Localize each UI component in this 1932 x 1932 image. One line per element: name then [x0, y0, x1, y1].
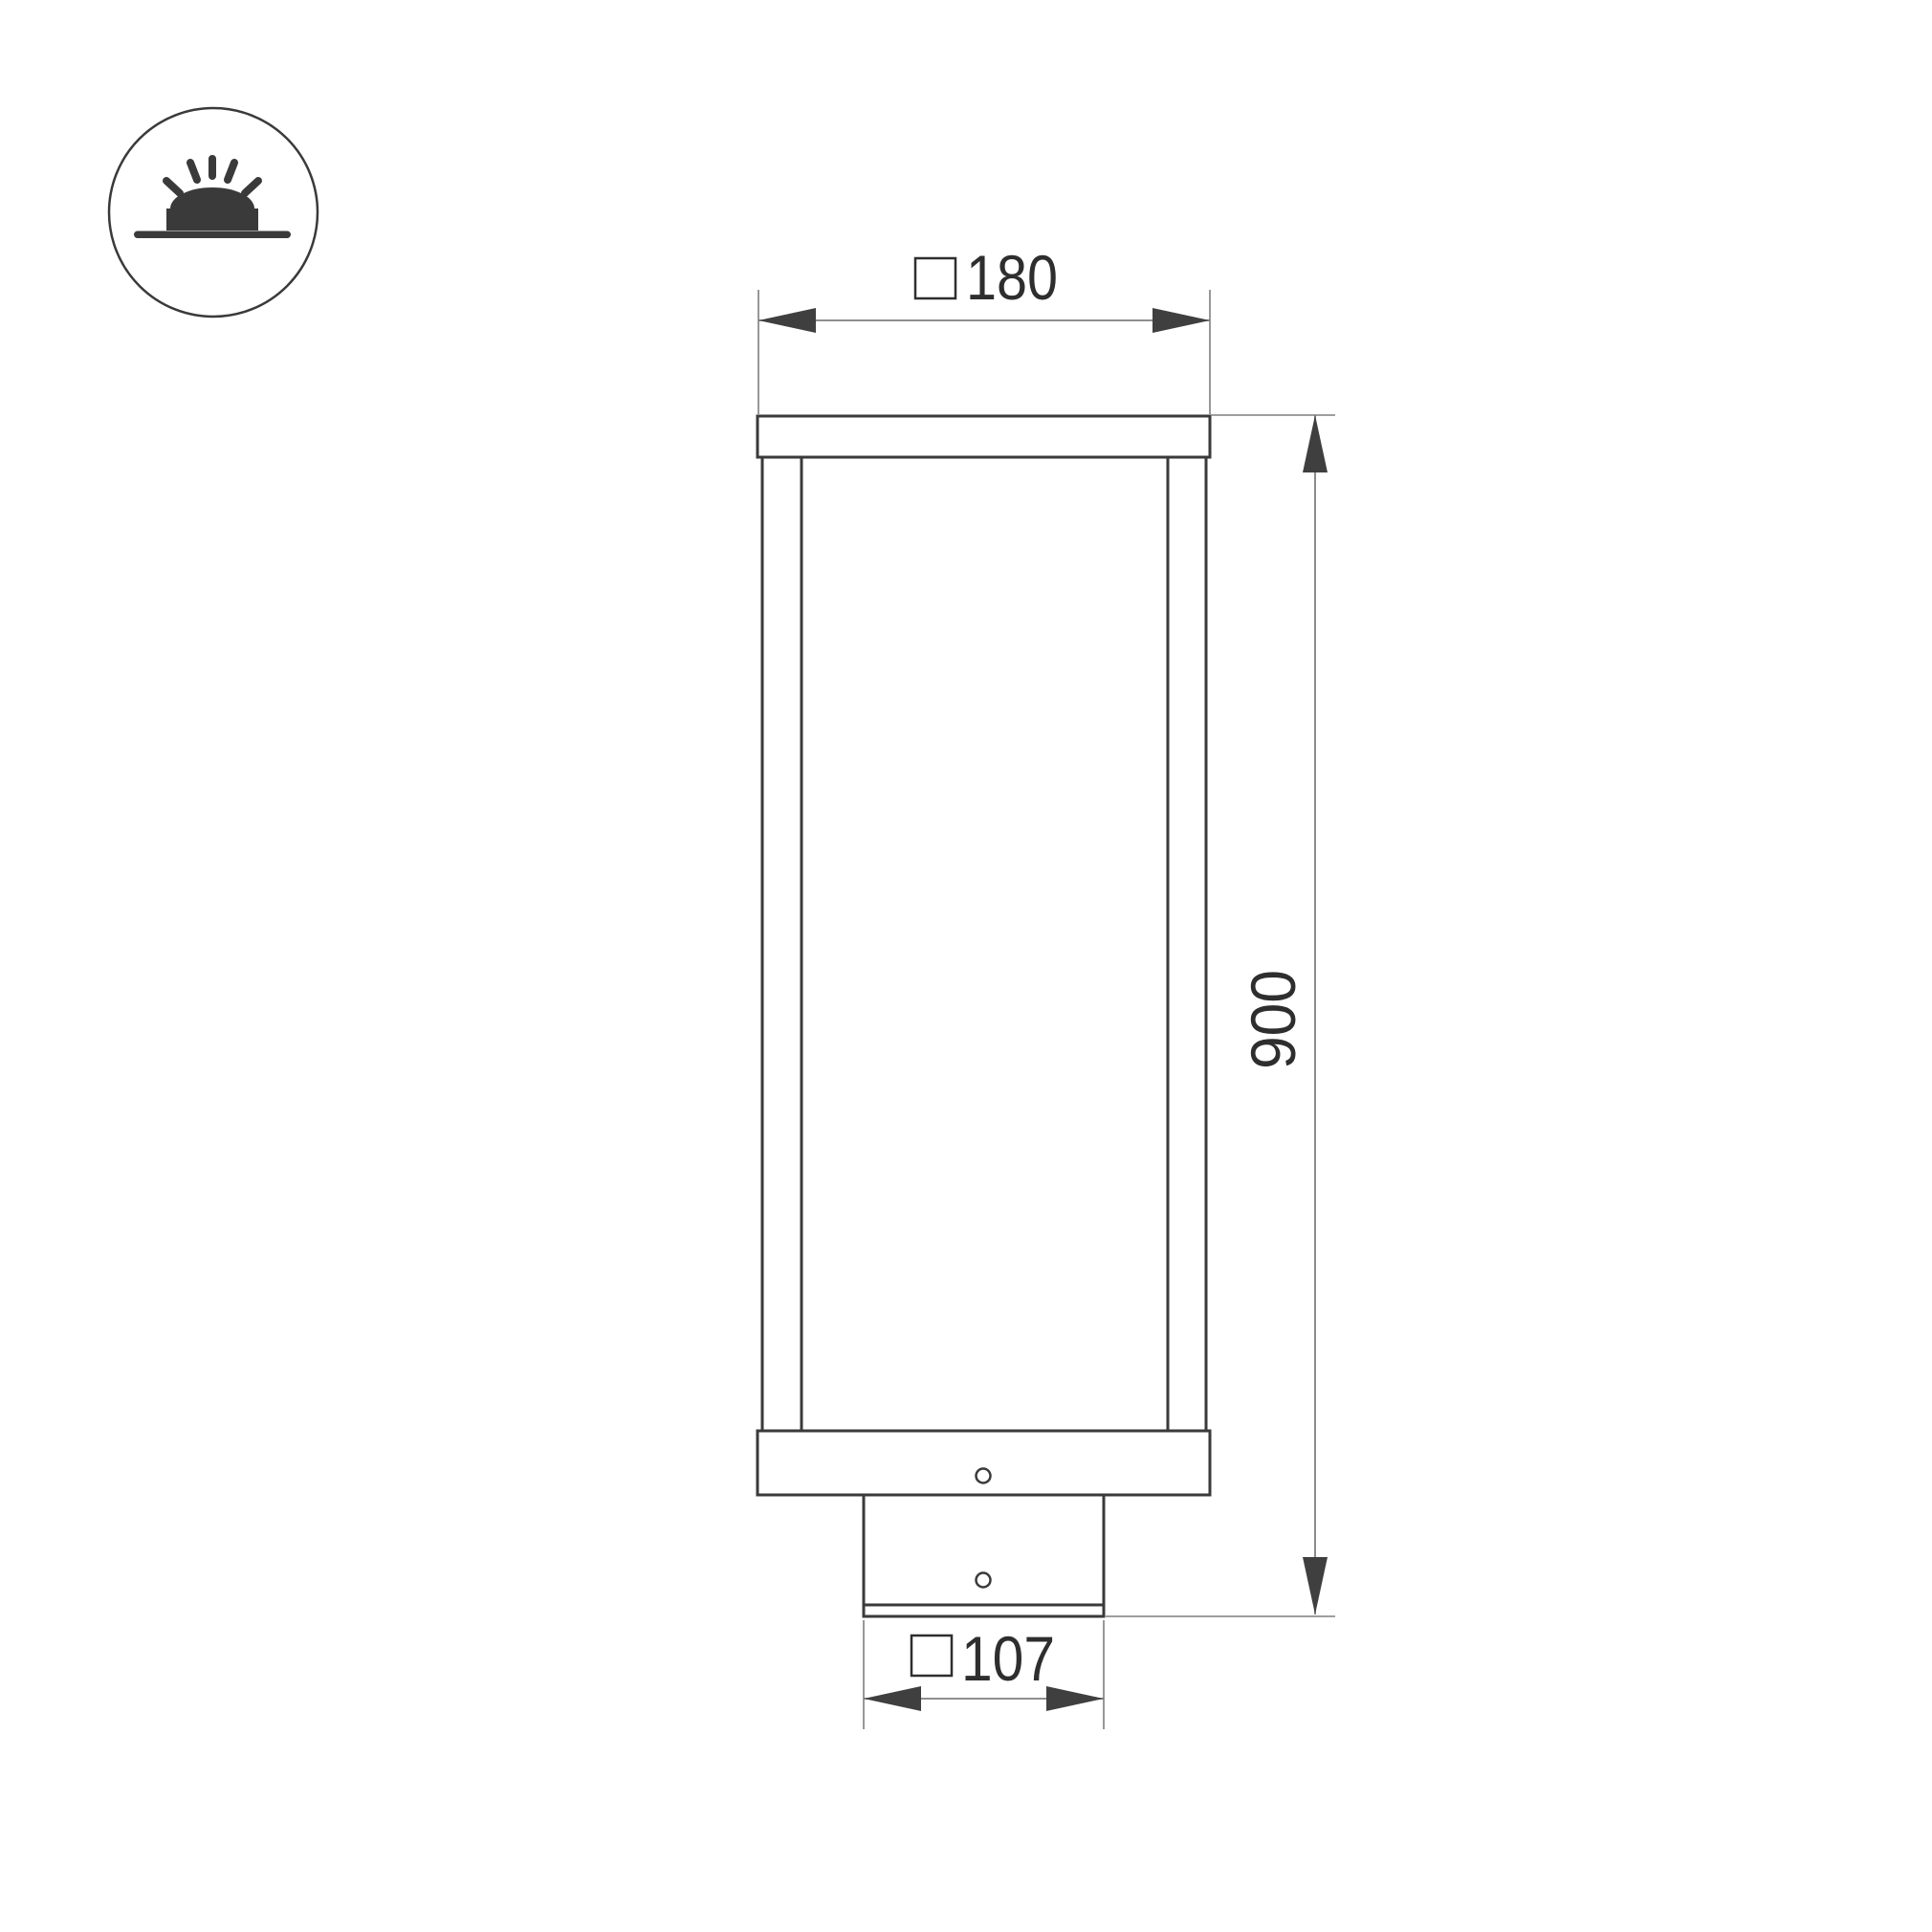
lamp-top-cap [757, 416, 1210, 457]
square-section-symbol [911, 1636, 952, 1676]
lamp-mounting-base [864, 1495, 1104, 1605]
dimension-top-width: 180 [758, 242, 1210, 414]
dimension-label-base-width: 107 [961, 1623, 1055, 1694]
arrow-right-icon [1046, 1686, 1104, 1711]
arrow-down-icon [1303, 1557, 1328, 1614]
arrow-up-icon [1303, 415, 1328, 472]
dimension-label-top-width: 180 [966, 242, 1058, 313]
lamp-body-frame [762, 457, 1206, 1431]
light-ray-icon [228, 163, 234, 180]
arrow-left-icon [864, 1686, 921, 1711]
light-ray-icon [166, 181, 180, 193]
arrow-left-icon [758, 308, 816, 333]
screw-hole-bottom [977, 1573, 991, 1588]
lamp-elevation [757, 416, 1210, 1616]
lamp-base-plate [864, 1605, 1104, 1616]
lamp-bottom-cap [757, 1431, 1210, 1495]
dimension-label-height: 900 [1238, 970, 1308, 1069]
technical-drawing-canvas: 180 900 107 [0, 0, 1932, 1932]
square-section-symbol [915, 258, 955, 298]
dimension-base-width: 107 [864, 1620, 1104, 1729]
light-ray-icon [245, 181, 258, 193]
ground-line-icon [134, 231, 291, 239]
lamp-dome-icon [170, 187, 254, 209]
light-ray-icon [190, 163, 197, 180]
surface-mounted-luminaire-icon [109, 108, 318, 317]
lamp-housing-icon [166, 209, 258, 231]
drawing-svg: 180 900 107 [0, 0, 1932, 1932]
arrow-right-icon [1153, 308, 1210, 333]
screw-hole-top [977, 1469, 991, 1483]
